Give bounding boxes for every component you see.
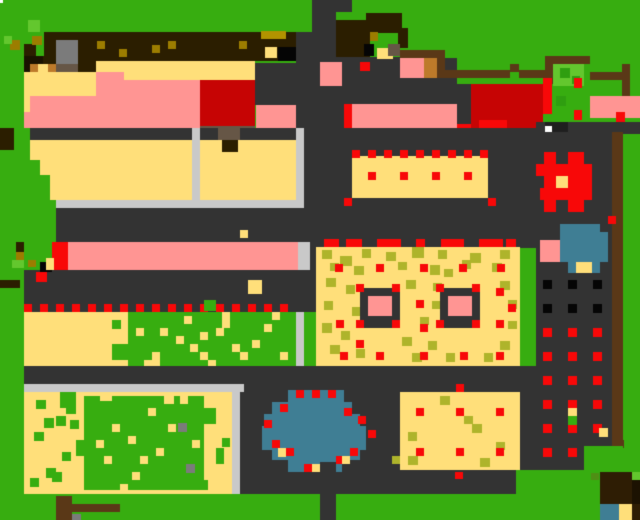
pixel-art-map-canvas[interactable] [0, 0, 640, 520]
game-map-viewport [0, 0, 640, 520]
